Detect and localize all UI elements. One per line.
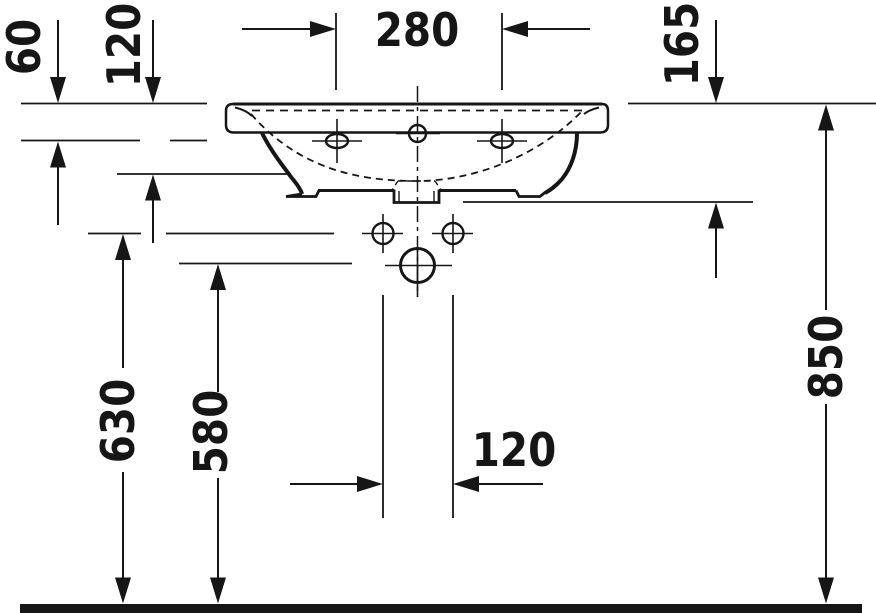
floor-line xyxy=(20,604,862,613)
arrow-120-up xyxy=(145,175,161,201)
arrow-850-down xyxy=(818,578,834,604)
inner-rim-right-curve xyxy=(584,108,599,115)
dim-label-580: 580 xyxy=(186,390,239,474)
crosshair-fixing-right xyxy=(432,214,473,253)
rim-left-corner xyxy=(226,104,233,133)
arrow-580-down xyxy=(210,578,226,604)
drain-neck-hidden xyxy=(392,181,441,190)
crosshair-tap-left xyxy=(312,119,362,163)
right-foot xyxy=(516,191,545,197)
arrow-60-down xyxy=(50,77,66,103)
arrowheads xyxy=(50,21,834,604)
apron-right-slope xyxy=(545,133,577,193)
arrow-120b-left xyxy=(453,476,479,492)
arrow-60-up xyxy=(50,142,66,168)
drain-recess xyxy=(394,190,439,203)
crosshair-drain xyxy=(385,248,452,297)
arrow-280-right xyxy=(310,21,336,37)
arrow-165-down xyxy=(708,77,724,103)
drain-recess-inner-walls xyxy=(399,191,434,202)
holes xyxy=(312,119,527,297)
arrow-120b-right xyxy=(357,476,383,492)
dim-label-630: 630 xyxy=(93,379,146,463)
dim-label-280: 280 xyxy=(375,5,459,58)
arrow-165-up xyxy=(708,203,724,229)
inner-rim-left-curve xyxy=(235,108,252,117)
arrow-580-up xyxy=(210,264,226,290)
dim-label-120-bottom: 120 xyxy=(472,425,556,478)
rim-right-corner xyxy=(601,104,608,133)
crosshair-fixing-left xyxy=(362,214,403,253)
dim-label-120-top: 120 xyxy=(99,3,152,87)
arrow-630-down xyxy=(115,578,131,604)
dim-label-850: 850 xyxy=(801,315,854,399)
bowl-hidden-curve xyxy=(251,111,582,181)
dimension-lines xyxy=(50,20,834,604)
arrow-850-up xyxy=(818,105,834,131)
drawing-page: 60 120 280 165 850 630 580 120 xyxy=(0,0,876,613)
extension-lines-120-bottom xyxy=(383,295,453,518)
arrow-630-up xyxy=(115,234,131,260)
arrow-280-left xyxy=(502,21,528,37)
dim-label-60: 60 xyxy=(0,19,52,75)
dimension-labels: 60 120 280 165 850 630 580 120 xyxy=(0,2,854,478)
dim-label-165: 165 xyxy=(657,2,710,86)
technical-drawing-canvas: 60 120 280 165 850 630 580 120 xyxy=(0,0,876,613)
